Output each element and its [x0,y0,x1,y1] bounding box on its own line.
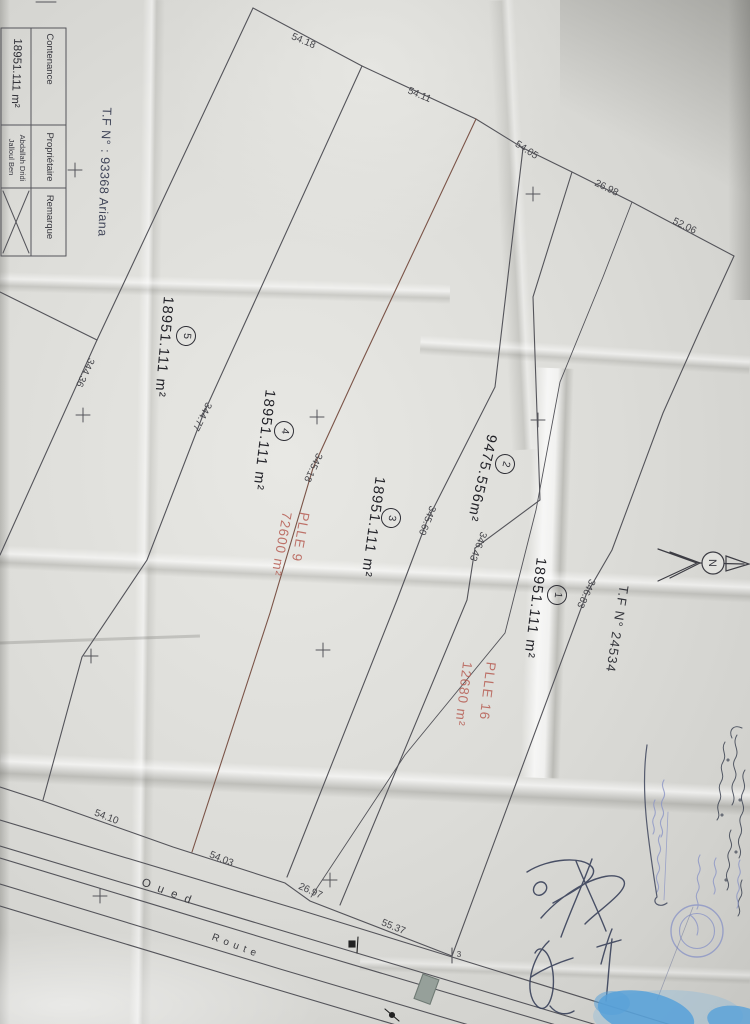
dim-54-03: 54.03 [207,850,234,869]
parcel-1-number: 1 [546,584,568,606]
tf-ref-adjacent: T.F N° 24534 [603,584,630,673]
plan-label-layer: 54.1854.1154.0526.9852.06344.36344.77345… [0,0,750,1024]
dim-54-05: 54.05 [513,140,540,162]
dim-344-77: 344.77 [189,400,212,432]
dim-54-11: 54.11 [406,86,432,105]
river-label: Oued [140,877,200,910]
dim-346-83: 346.83 [574,577,596,609]
dim-344-36: 344.36 [73,356,95,388]
parcel-3-area: 18951.111 m² [357,476,386,579]
dim-346-43: 346.43 [466,530,487,562]
parcel-5-area: 18951.111 m² [151,296,175,399]
dim-345-18: 345.18 [301,451,323,483]
scanned-cadastral-plan: N [0,0,750,1024]
dim-52-06: 52.06 [670,217,697,237]
road-label: Route [210,933,262,961]
parcel-2-area: 9475.556m² [464,433,499,524]
dim-26-98: 26.98 [592,179,619,199]
plle16-name: PLLE 16 [476,661,497,721]
table-contenance-label: Contenance [44,33,54,84]
parcel-2-number: 2 [493,452,517,476]
parcel-4-number: 4 [273,420,295,442]
parcel-1-area: 18951.111 m² [520,557,548,660]
table-remarque-label: Remarque [44,195,54,239]
table-owner-line2: Abdallah Dridi [18,135,26,182]
dim-54-10: 54.10 [92,809,119,828]
tf-ref-main: T.F N° : 93368 Ariana [95,107,113,237]
parcel-5-number: 5 [175,325,197,347]
corner-point-label: 3 [457,951,461,959]
dim-54-18: 54.18 [289,32,316,51]
parcel-4-area: 18951.111 m² [249,389,277,492]
plle9-area: 72600 m² [268,511,293,578]
dim-55-37: 55.37 [379,918,406,937]
parcel-3-number: 3 [380,507,403,530]
dim-345-60: 345.60 [415,504,436,536]
table-proprietaire-label: Propriétaire [44,132,54,181]
table-contenance-value: 18951.111 m² [9,38,23,108]
plle16-area: 12680 m² [452,661,474,727]
table-owner-line1: Jalloul Ben [7,139,15,176]
dim-26-97: 26.97 [296,882,323,902]
